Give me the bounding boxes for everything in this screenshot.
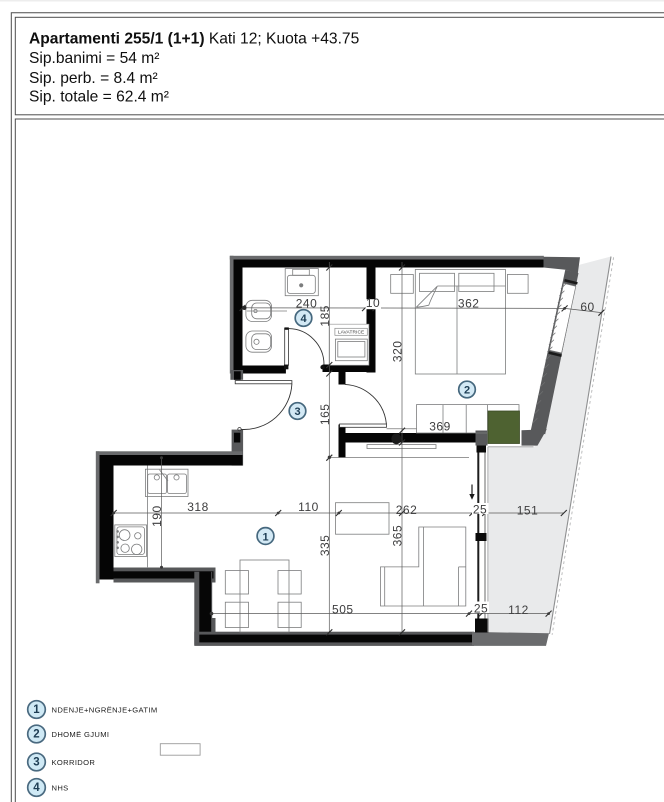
svg-text:1: 1: [33, 704, 40, 716]
svg-text:DHOMË GJUMI: DHOMË GJUMI: [52, 730, 110, 739]
svg-text:25: 25: [473, 503, 487, 517]
svg-text:KORRIDOR: KORRIDOR: [52, 758, 96, 767]
svg-text:LAVATRICE: LAVATRICE: [338, 330, 365, 336]
svg-text:369: 369: [429, 419, 451, 433]
svg-text:10: 10: [366, 296, 380, 310]
svg-text:Sip. totale = 62.4 m²: Sip. totale = 62.4 m²: [29, 89, 169, 106]
svg-text:2: 2: [33, 729, 39, 741]
svg-text:151: 151: [517, 504, 539, 518]
svg-text:165: 165: [318, 404, 332, 426]
svg-text:240: 240: [296, 296, 318, 310]
svg-text:365: 365: [390, 525, 404, 547]
svg-text:112: 112: [508, 603, 529, 617]
svg-text:185: 185: [318, 305, 332, 327]
svg-text:NHS: NHS: [52, 783, 69, 792]
svg-text:262: 262: [396, 503, 418, 517]
svg-text:110: 110: [298, 500, 319, 514]
svg-text:Sip. perb. = 8.4 m²: Sip. perb. = 8.4 m²: [29, 70, 158, 87]
svg-text:4: 4: [33, 782, 40, 794]
svg-text:362: 362: [458, 297, 480, 311]
svg-text:3: 3: [33, 757, 39, 769]
svg-text:335: 335: [318, 535, 332, 557]
svg-text:4: 4: [300, 313, 307, 325]
svg-text:NDENJE+NGRËNJE+GATIM: NDENJE+NGRËNJE+GATIM: [52, 705, 158, 714]
svg-text:320: 320: [390, 341, 404, 363]
svg-text:Apartamenti 255/1 (1+1) Kati 1: Apartamenti 255/1 (1+1) Kati 12; Kuota +…: [29, 30, 360, 47]
svg-text:2: 2: [464, 385, 470, 397]
svg-text:505: 505: [332, 603, 354, 617]
svg-text:1: 1: [262, 532, 268, 544]
svg-text:60: 60: [580, 300, 594, 314]
svg-text:Sip.banimi = 54 m²: Sip.banimi = 54 m²: [29, 50, 159, 67]
svg-text:3: 3: [294, 406, 300, 418]
svg-text:25: 25: [474, 602, 488, 616]
svg-text:190: 190: [150, 505, 164, 527]
svg-text:318: 318: [187, 500, 209, 514]
